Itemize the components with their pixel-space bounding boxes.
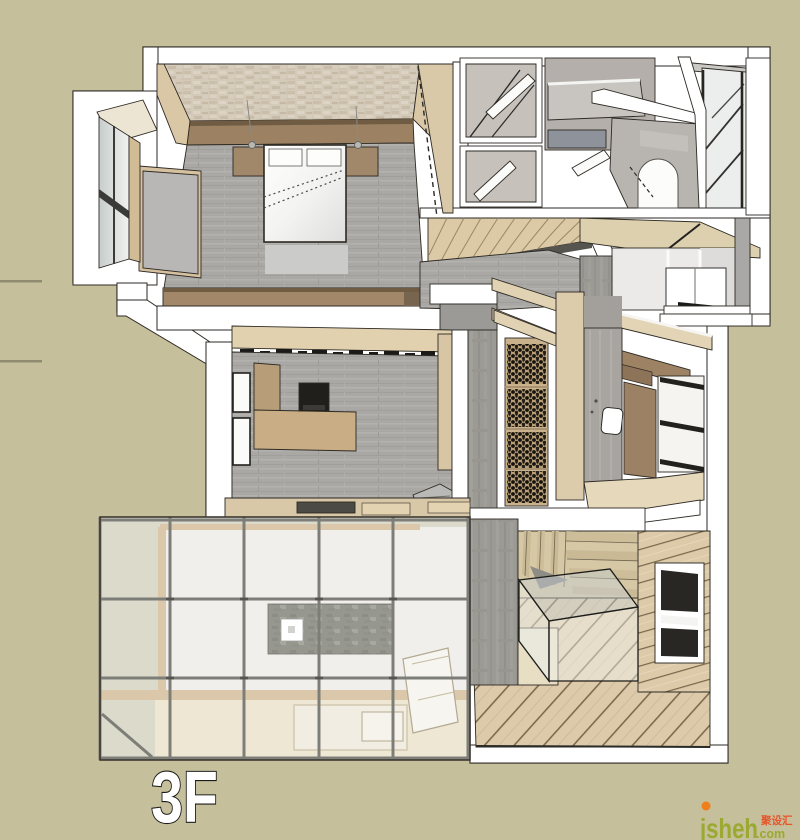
svg-text:.com: .com	[756, 827, 785, 840]
svg-text:3F: 3F	[151, 758, 218, 838]
svg-text:jsheh: jsheh	[699, 813, 758, 840]
svg-text:聚设汇: 聚设汇	[760, 814, 793, 827]
